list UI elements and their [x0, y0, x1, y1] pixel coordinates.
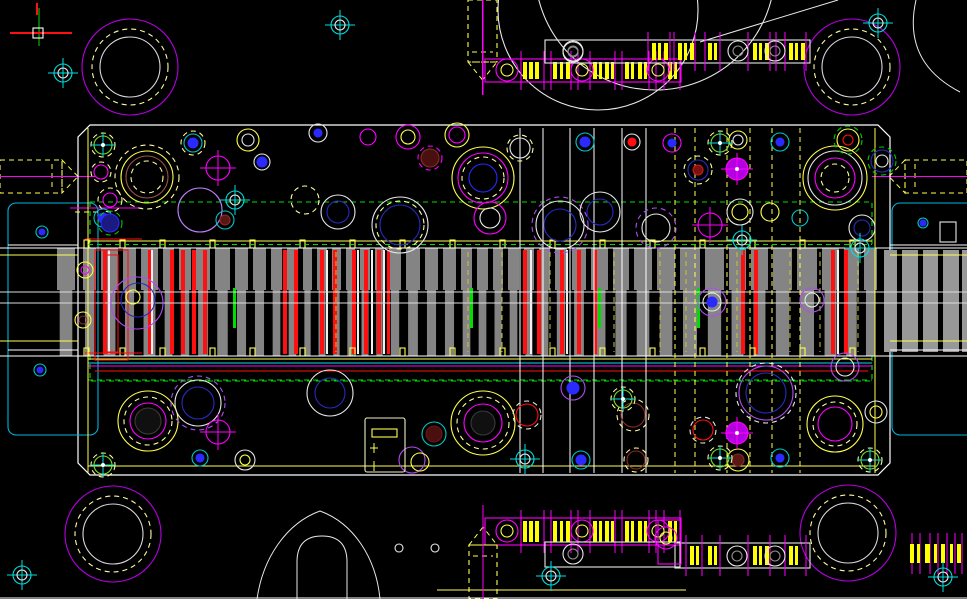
hole-circle	[628, 138, 636, 146]
punch-shank	[495, 290, 502, 356]
insert-red	[203, 250, 207, 354]
strip-bar	[566, 62, 570, 79]
hole-circle	[196, 454, 204, 462]
strip-bar	[690, 43, 694, 60]
strip-bar	[708, 43, 712, 60]
strip-bar	[795, 546, 798, 565]
punch-head	[613, 248, 629, 290]
strip-bar	[789, 43, 793, 60]
punch-head	[215, 248, 230, 290]
strip-bar	[910, 544, 914, 563]
punch-shank	[391, 290, 399, 356]
strip-bar	[925, 544, 930, 563]
punch-shank	[304, 290, 310, 356]
hole-circle	[39, 229, 45, 235]
punch-bar-right	[884, 250, 897, 352]
punch-shank	[479, 290, 487, 356]
strip-bar	[789, 546, 793, 565]
strip-bar	[560, 521, 563, 542]
strip-bar	[664, 43, 668, 60]
hole-circle	[580, 137, 590, 147]
strip-bar	[801, 43, 805, 60]
punch-shank	[445, 290, 454, 356]
punch-shank	[255, 290, 264, 356]
punch-bar-right	[943, 250, 959, 352]
strip-bar	[917, 544, 920, 563]
strip-bar	[684, 43, 687, 60]
punch-head	[253, 248, 266, 290]
hole-circle	[471, 411, 495, 435]
insert-red	[352, 250, 356, 354]
insert-red	[577, 250, 581, 354]
strip-bar	[611, 62, 614, 79]
strip-bar	[593, 521, 597, 542]
hole-circle	[314, 129, 322, 137]
punch-head	[83, 248, 96, 290]
punch-head	[822, 248, 839, 290]
punch-head	[406, 248, 420, 290]
strip-bar	[690, 546, 694, 565]
punch-head	[461, 248, 472, 290]
spring-center-dot	[621, 397, 625, 401]
insert-red	[294, 250, 298, 354]
insert-white	[530, 250, 532, 354]
strip-bar	[652, 43, 656, 60]
insert-white	[383, 250, 385, 354]
punch-head	[303, 248, 312, 290]
strip-bar	[714, 546, 717, 565]
spring-center-dot	[718, 141, 722, 145]
hole-circle	[188, 138, 198, 148]
punch-head	[57, 248, 75, 290]
strip-bar	[560, 62, 563, 79]
insert-red	[170, 250, 174, 354]
strip-bar	[638, 521, 642, 542]
punch-bar-right	[902, 250, 918, 352]
punch-head	[271, 248, 282, 290]
insert-white	[326, 250, 328, 354]
punch-bar-right	[923, 250, 938, 352]
strip-bar	[535, 62, 539, 79]
strip-bar	[599, 521, 602, 542]
punch-bar-right	[962, 250, 967, 352]
datum-center-dot	[735, 167, 739, 171]
insert-green	[598, 288, 601, 328]
insert-red	[364, 250, 368, 354]
strip-bar	[625, 521, 629, 542]
insert-red	[523, 250, 527, 354]
insert-red	[377, 250, 381, 354]
punch-shank	[408, 290, 418, 356]
strip-bar	[605, 62, 609, 79]
punch-shank	[463, 290, 471, 356]
cad-viewport[interactable]	[0, 0, 967, 599]
strip-bar	[753, 546, 757, 565]
insert-red	[387, 250, 390, 354]
insert-red	[320, 250, 324, 354]
insert-green	[233, 288, 236, 328]
strip-bar	[714, 43, 717, 60]
spring-center-dot	[718, 456, 722, 460]
hole-circle	[693, 165, 703, 175]
insert-white	[151, 250, 153, 354]
punch-shank	[237, 290, 246, 356]
strip-bar	[957, 544, 961, 563]
punch-shank	[541, 290, 549, 356]
punch-head	[773, 248, 792, 290]
punch-shank	[427, 290, 436, 356]
hole-circle	[776, 454, 784, 462]
insert-red	[537, 250, 541, 354]
insert-red	[831, 250, 835, 354]
hole-circle	[920, 220, 926, 226]
strip-bar	[553, 521, 557, 542]
hole-circle	[426, 426, 442, 442]
insert-red	[181, 250, 185, 354]
hole-circle	[567, 382, 579, 394]
punch-shank	[866, 290, 875, 356]
hole-circle	[220, 215, 230, 225]
strip-bar	[753, 43, 757, 60]
insert-red	[844, 250, 848, 354]
spring-center-dot	[868, 458, 872, 462]
insert-green	[470, 288, 473, 328]
strip-bar	[658, 43, 661, 60]
strip-bar	[593, 62, 597, 79]
punch-head	[477, 248, 488, 290]
datum-center-dot	[735, 431, 739, 435]
punch-head	[235, 248, 248, 290]
strip-bar	[941, 544, 945, 563]
punch-shank	[615, 290, 626, 356]
hole-circle	[101, 214, 119, 232]
strip-bar	[631, 62, 634, 79]
hole-circle	[776, 138, 784, 146]
strip-bar	[708, 546, 712, 565]
hole-circle	[421, 149, 439, 167]
strip-bar	[553, 62, 557, 79]
punch-head	[680, 248, 700, 290]
punch-shank	[217, 290, 228, 356]
strip-bar	[611, 521, 614, 542]
strip-bar	[795, 43, 798, 60]
strip-bar	[631, 521, 634, 542]
strip-bar	[678, 43, 682, 60]
insert-white	[566, 250, 568, 354]
punch-shank	[800, 290, 814, 356]
hole-circle	[135, 408, 161, 434]
strip-bar	[523, 521, 527, 542]
hole-circle	[668, 139, 676, 147]
strip-bar	[759, 43, 762, 60]
insert-red	[754, 250, 758, 354]
insert-red	[741, 250, 745, 354]
strip-bar	[950, 544, 953, 563]
insert-white	[837, 250, 839, 354]
punch-head	[751, 248, 768, 290]
punch-shank	[273, 290, 281, 356]
punch-head	[634, 248, 652, 290]
insert-white	[357, 250, 359, 354]
strip-bar	[529, 521, 533, 542]
punch-band	[57, 240, 967, 356]
punch-head	[425, 248, 438, 290]
strip-bar	[566, 521, 570, 542]
strip-bar	[529, 62, 533, 79]
hole-circle	[576, 455, 586, 465]
punch-shank	[60, 290, 73, 356]
strip-bar	[638, 62, 642, 79]
insert-red	[283, 250, 287, 354]
spring-center-dot	[101, 463, 105, 467]
punch-head	[508, 248, 519, 290]
strip-bar	[625, 62, 629, 79]
strip-bar	[934, 544, 937, 563]
punch-head	[389, 248, 401, 290]
insert-white	[108, 250, 110, 354]
punch-head	[705, 248, 724, 290]
strip-bar	[599, 62, 602, 79]
insert-white	[371, 250, 373, 354]
cad-drawing-canvas[interactable]	[0, 0, 967, 599]
insert-red	[560, 250, 564, 354]
spring-center-dot	[101, 143, 105, 147]
strip-bar	[696, 546, 699, 565]
strip-bar	[605, 521, 609, 542]
hole-circle	[732, 454, 744, 466]
insert-red	[192, 250, 196, 354]
punch-shank	[637, 290, 650, 356]
strip-bar	[759, 546, 762, 565]
hole-circle	[707, 297, 717, 307]
strip-bar	[523, 62, 527, 79]
strip-bar	[535, 521, 539, 542]
hole-circle	[37, 367, 43, 373]
punch-shank	[660, 290, 673, 356]
punch-head	[443, 248, 456, 290]
hole-circle	[257, 157, 267, 167]
punch-shank	[510, 290, 518, 356]
punch-shank	[776, 290, 789, 356]
